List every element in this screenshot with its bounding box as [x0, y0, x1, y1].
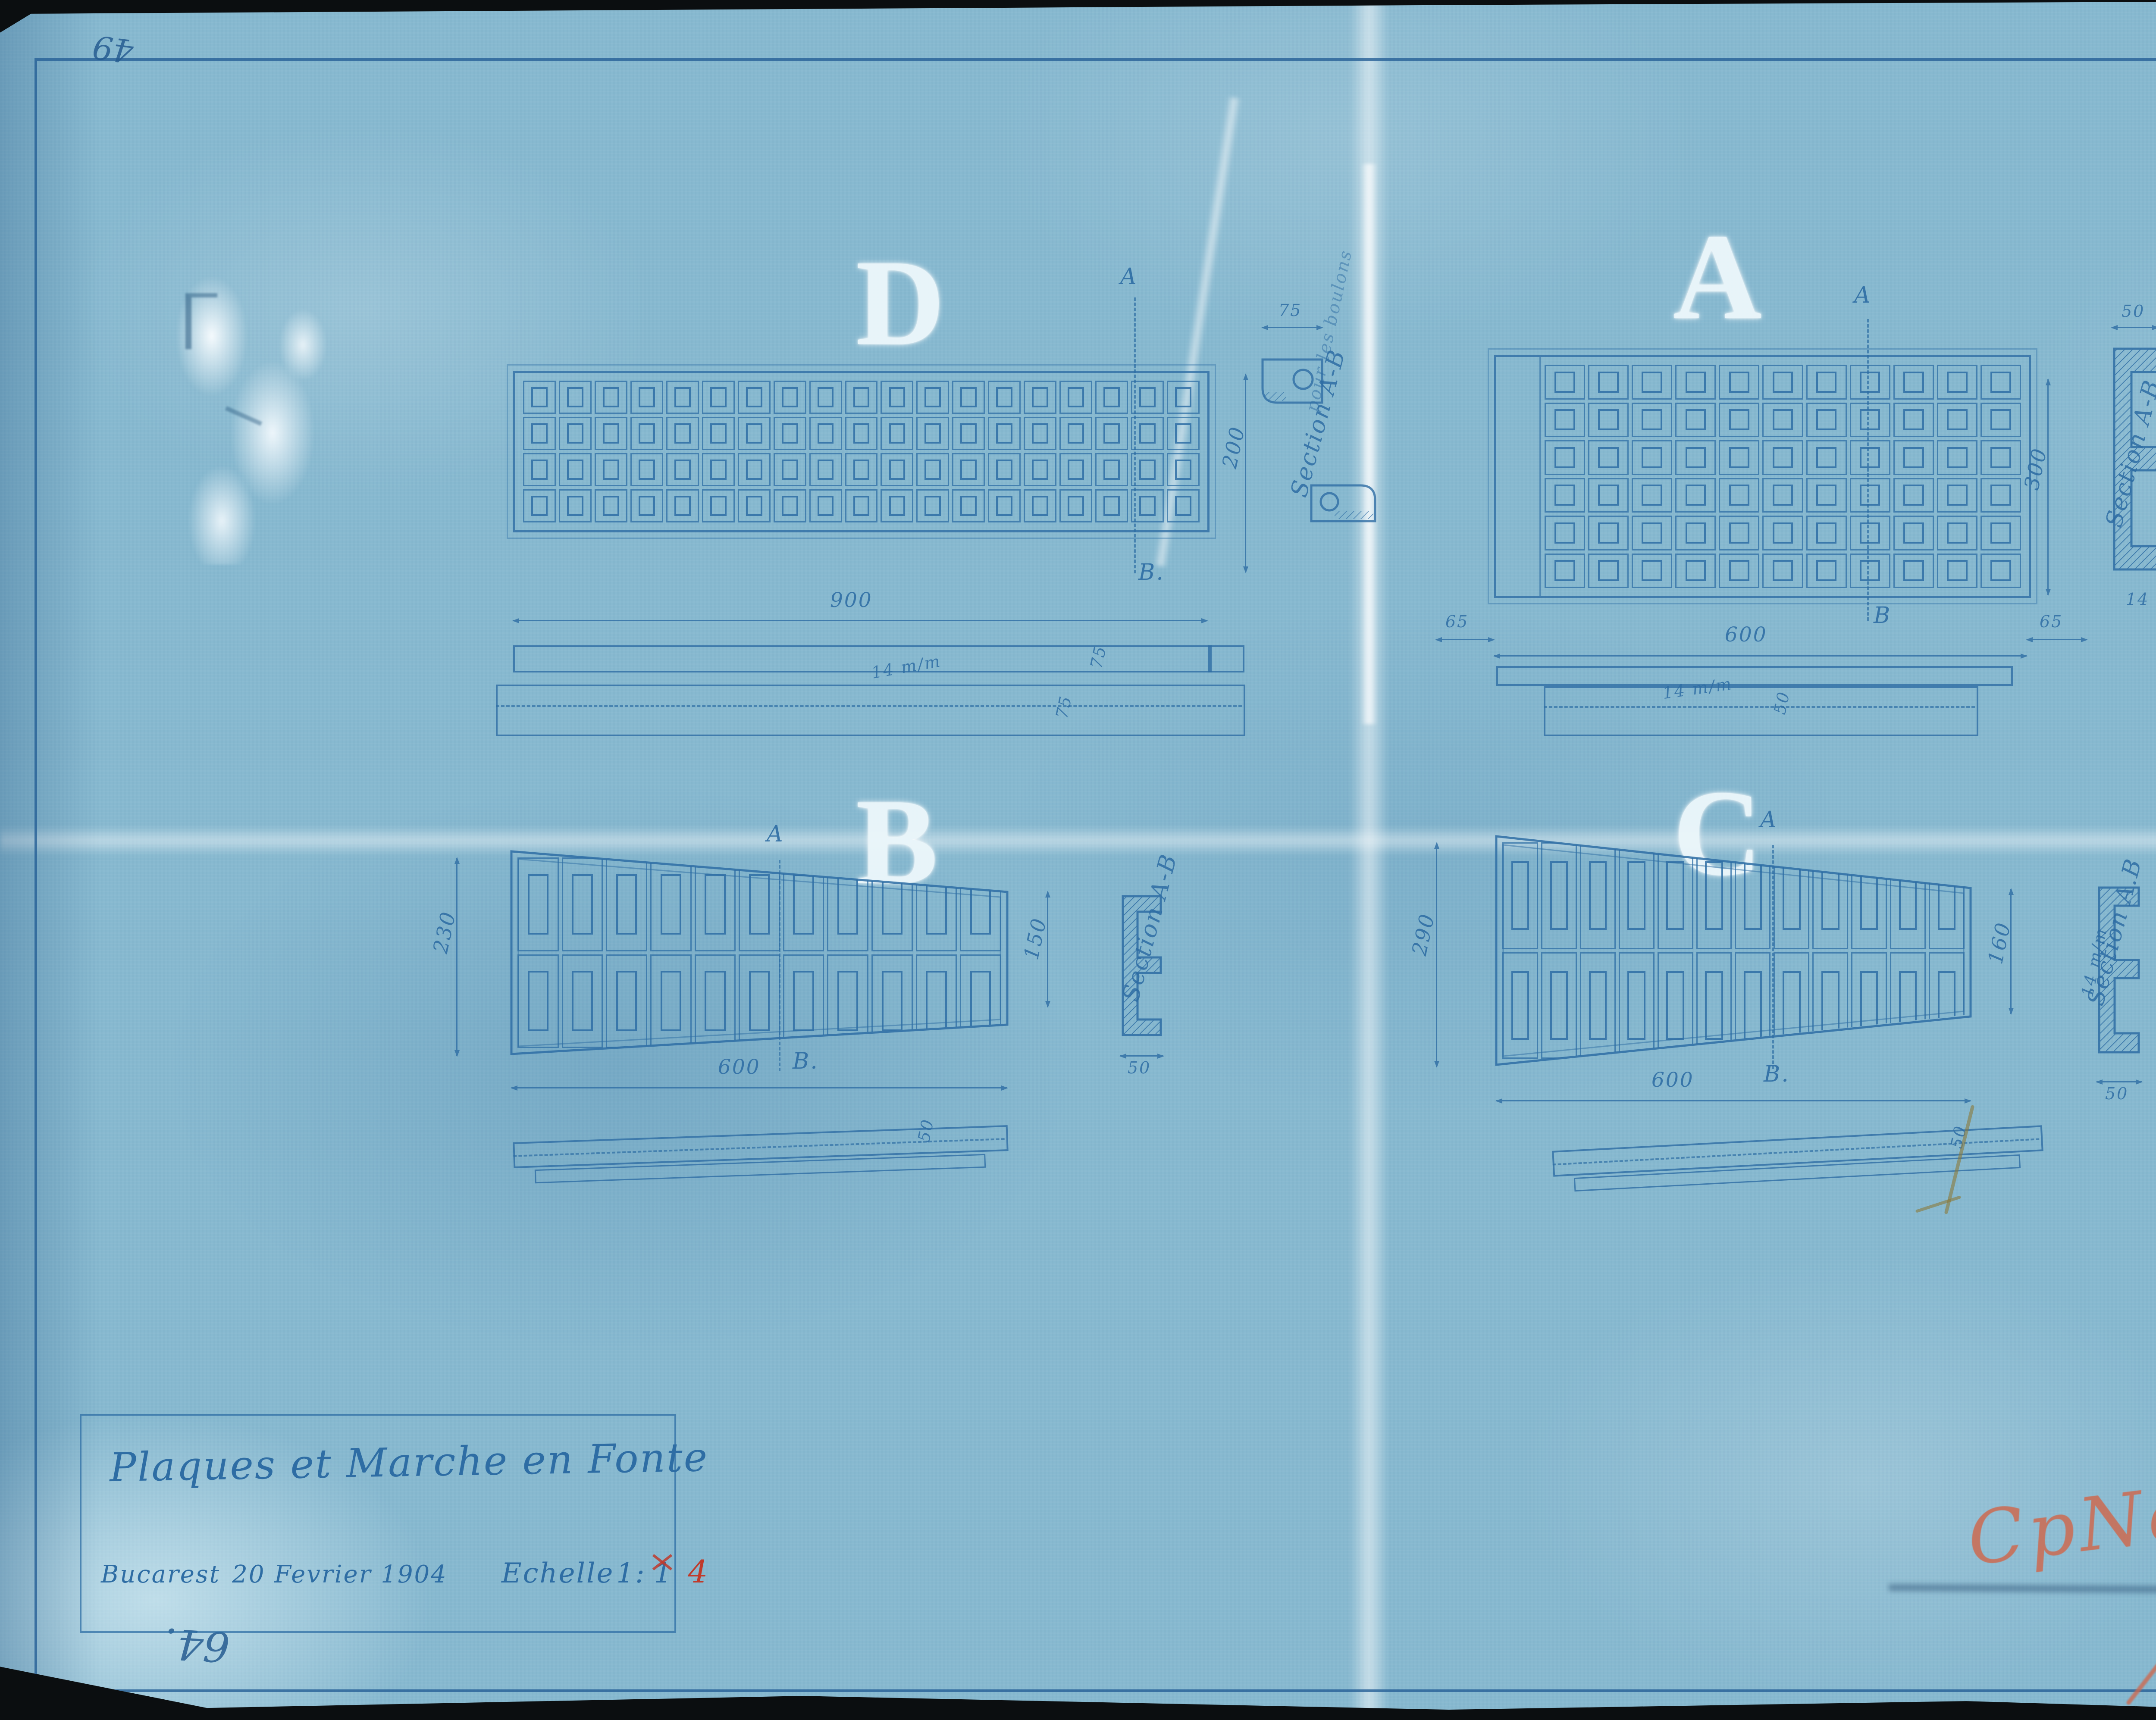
plate-C-length-dim-line: [1496, 1100, 1971, 1101]
detail-width-dim: 75: [1279, 301, 1302, 320]
coffer-cell: [1095, 453, 1128, 486]
coffer-cell: [952, 417, 985, 450]
plate-A-side-view-bottom: [1544, 686, 1978, 736]
coffer-cell: [845, 489, 878, 522]
coffer-cell: [559, 489, 592, 522]
plate-letter-A: A: [1673, 216, 1762, 338]
plate-B-left-height-dim-line: [456, 858, 458, 1056]
title-place: Bucarest: [101, 1561, 220, 1589]
coffer-cell: [916, 453, 949, 486]
coffer-cell: [1545, 440, 1585, 475]
coffer-cell: [630, 489, 663, 522]
coffer-cell: [1024, 489, 1056, 522]
coffer-cell: [1981, 478, 2021, 513]
coffer-cell: [1762, 365, 1803, 400]
coffer-cell: [1806, 516, 1847, 550]
coffer-cell: [1588, 516, 1629, 550]
coffer-cell: [1937, 440, 1977, 475]
coffer-cell: [559, 417, 592, 450]
plate-A-left-margin-dim-line: [1436, 639, 1494, 640]
coffer-cell: [845, 417, 878, 450]
coffer-cell: [1806, 403, 1847, 438]
coffer-cell: [666, 489, 699, 522]
coffer-cell: [916, 489, 949, 522]
plate-A-right-margin-dim: 65: [2040, 612, 2063, 631]
coffer-cell: [630, 453, 663, 486]
plate-C-plan: [1496, 836, 1971, 1065]
coffer-cell: [1095, 489, 1128, 522]
coffer-cell: [809, 453, 842, 486]
plate-B-marker-A: A: [767, 821, 784, 847]
plate-A-marker-A: A: [1854, 282, 1872, 308]
coffer-cell: [559, 381, 592, 414]
coffer-cell: [666, 381, 699, 414]
coffer-cell: [809, 417, 842, 450]
coffer-cell: [1719, 516, 1759, 550]
coffer-cell: [1937, 365, 1977, 400]
coffer-cell: [1762, 403, 1803, 438]
coffer-cell: [1131, 417, 1164, 450]
coffer-cell: [881, 381, 913, 414]
coffer-cell: [702, 417, 735, 450]
coffer-cell: [1850, 403, 1890, 438]
plate-C-outline: [1494, 834, 1973, 1067]
coffer-cell: [1981, 365, 2021, 400]
coffer-cell: [952, 453, 985, 486]
plate-C-marker-A: A: [1760, 807, 1778, 833]
coffer-cell: [1806, 365, 1847, 400]
coffer-cell: [1850, 478, 1890, 513]
plate-A-profile-width: 50: [2122, 302, 2145, 321]
plate-B-right-height-dim-line: [1047, 891, 1048, 1007]
coffer-cell: [881, 417, 913, 450]
coffer-cell: [1545, 365, 1585, 400]
coffer-cell: [630, 417, 663, 450]
coffer-cell: [1806, 440, 1847, 475]
coffer-cell: [1095, 417, 1128, 450]
coffer-cell: [988, 417, 1021, 450]
coffer-cell: [1167, 453, 1200, 486]
detail-width-dim-line: [1262, 327, 1322, 328]
sheet-number-top-left: 49: [91, 28, 135, 70]
coffer-cell: [774, 489, 806, 522]
coffer-cell: [1588, 440, 1629, 475]
coffer-cell: [738, 381, 771, 414]
plate-A-profile-section: [2111, 347, 2156, 571]
plate-B-marker-B: B.: [793, 1048, 819, 1074]
coffer-cell: [952, 381, 985, 414]
coffer-cell: [845, 381, 878, 414]
plate-D-coffer-grid: [523, 381, 1200, 522]
plate-B-profile-width: 50: [1128, 1058, 1151, 1077]
plate-D-marker-B: B.: [1138, 560, 1165, 585]
plate-A-side-view-top: [1496, 666, 2013, 686]
coffer-cell: [1059, 489, 1092, 522]
coffer-cell: [809, 489, 842, 522]
coffer-cell: [1632, 478, 1672, 513]
bolt-corner-detail-bottom: [1309, 483, 1378, 524]
coffer-cell: [1059, 417, 1092, 450]
plate-A-profile-width-dim-line: [2112, 327, 2156, 328]
coffer-cell: [1545, 516, 1585, 550]
plate-C-length-dim: 600: [1651, 1068, 1694, 1092]
coffer-cell: [1937, 403, 1977, 438]
plate-C-profile-section: [2096, 886, 2142, 1054]
coffer-cell: [1893, 403, 1934, 438]
coffer-cell: [1762, 478, 1803, 513]
coffer-cell: [774, 417, 806, 450]
coffer-cell: [1806, 478, 1847, 513]
coffer-cell: [1095, 381, 1128, 414]
coffer-cell: [702, 453, 735, 486]
coffer-cell: [1675, 403, 1716, 438]
coffer-cell: [523, 381, 556, 414]
coffer-cell: [1059, 453, 1092, 486]
coffer-cell: [1981, 440, 2021, 475]
plate-A-base-width-dim: 14 m/m: [2126, 590, 2156, 609]
plate-letter-D: D: [856, 241, 945, 364]
coffer-cell: [595, 453, 627, 486]
coffer-cell: [774, 381, 806, 414]
coffer-cell: [881, 489, 913, 522]
plate-C-profile-width: 50: [2105, 1084, 2128, 1103]
coffer-cell: [1981, 554, 2021, 588]
coffer-cell: [523, 489, 556, 522]
paper: 49 64. ROMÂNO-AMERICANA D A B. 900 200 S…: [0, 0, 2156, 1720]
plate-B-length-dim: 600: [718, 1055, 761, 1079]
coffer-cell: [1719, 403, 1759, 438]
plate-D-length-dim-line: [513, 620, 1207, 621]
plate-A-margin-strip: [1496, 357, 1541, 596]
plate-A-side-centerline: [1544, 706, 1975, 708]
coffer-cell: [1167, 381, 1200, 414]
plate-A-section-line: [1867, 319, 1869, 621]
coffer-cell: [1131, 453, 1164, 486]
coffer-cell: [1632, 440, 1672, 475]
plate-C-profile-width-dim-line: [2096, 1081, 2142, 1082]
coffer-cell: [1850, 440, 1890, 475]
coffer-cell: [1675, 440, 1716, 475]
plate-D-side-view-stub: [1208, 645, 1244, 672]
coffer-cell: [1675, 478, 1716, 513]
coffer-cell: [1588, 478, 1629, 513]
plate-D-height-dim-line: [1245, 374, 1246, 572]
coffer-cell: [916, 417, 949, 450]
plate-D-plan: [513, 371, 1210, 532]
plate-A-marker-B: B: [1874, 603, 1891, 629]
coffer-cell: [1893, 440, 1934, 475]
coffer-cell: [666, 453, 699, 486]
coffer-cell: [1545, 554, 1585, 588]
coffer-cell: [1588, 403, 1629, 438]
scale-old-value: 1: [654, 1557, 673, 1589]
scale-new-value: 4: [688, 1554, 709, 1590]
coffer-cell: [1632, 516, 1672, 550]
plate-D-section-line: [1134, 297, 1136, 573]
coffer-cell: [1762, 516, 1803, 550]
coffer-cell: [1937, 516, 1977, 550]
coffer-cell: [523, 417, 556, 450]
coffer-cell: [809, 381, 842, 414]
coffer-cell: [738, 453, 771, 486]
coffer-cell: [1850, 365, 1890, 400]
plate-A-coffer-grid: [1545, 365, 2021, 588]
coffer-cell: [1762, 554, 1803, 588]
coffer-cell: [1131, 381, 1164, 414]
coffer-cell: [1167, 489, 1200, 522]
coffer-cell: [1545, 478, 1585, 513]
coffer-cell: [1675, 554, 1716, 588]
scale-prefix: 1:: [616, 1557, 646, 1589]
plate-A-length-dim: 600: [1725, 623, 1767, 647]
coffer-cell: [1059, 381, 1092, 414]
coffer-cell: [1893, 554, 1934, 588]
coffer-cell: [1893, 365, 1934, 400]
coffer-cell: [595, 381, 627, 414]
coffer-cell: [1719, 365, 1759, 400]
plate-C-marker-B: B.: [1764, 1061, 1790, 1087]
coffer-cell: [559, 453, 592, 486]
coffer-cell: [1024, 453, 1056, 486]
coffer-cell: [1588, 554, 1629, 588]
title-date: 20 Fevrier 1904: [232, 1561, 448, 1589]
plate-D-side-centerline: [496, 705, 1242, 707]
coffer-cell: [1719, 478, 1759, 513]
plate-A-plan: [1494, 355, 2031, 598]
coffer-cell: [1937, 478, 1977, 513]
plate-A-right-margin-dim-line: [2027, 639, 2087, 640]
coffer-cell: [1024, 417, 1056, 450]
plate-B-length-dim-line: [511, 1087, 1007, 1088]
coffer-cell: [666, 417, 699, 450]
coffer-cell: [1850, 554, 1890, 588]
plate-D-side-view-bottom: [496, 685, 1245, 736]
plate-B-outline: [509, 849, 1010, 1057]
coffer-cell: [1167, 417, 1200, 450]
coffer-cell: [738, 489, 771, 522]
coffer-cell: [1024, 381, 1056, 414]
blueprint-sheet: 49 64. ROMÂNO-AMERICANA D A B. 900 200 S…: [0, 0, 2156, 1720]
coffer-cell: [1131, 489, 1164, 522]
plate-D-marker-A: A: [1120, 264, 1138, 290]
coffer-cell: [702, 489, 735, 522]
coffer-cell: [595, 489, 627, 522]
coffer-cell: [1545, 403, 1585, 438]
plate-B-profile-width-dim-line: [1120, 1055, 1163, 1057]
plate-A-left-margin-dim: 65: [1445, 612, 1469, 631]
coffer-cell: [881, 453, 913, 486]
coffer-cell: [1632, 365, 1672, 400]
plate-D-length-dim: 900: [830, 588, 873, 612]
plate-B-profile-section: [1120, 894, 1163, 1037]
coffer-cell: [952, 489, 985, 522]
plate-C-right-height-dim-line: [2010, 889, 2012, 1014]
plate-B-section-line: [779, 860, 780, 1071]
coffer-cell: [1675, 516, 1716, 550]
coffer-cell: [1981, 516, 2021, 550]
coffer-cell: [1719, 440, 1759, 475]
coffer-cell: [1675, 365, 1716, 400]
coffer-cell: [1588, 365, 1629, 400]
coffer-cell: [1893, 478, 1934, 513]
coffer-cell: [1719, 554, 1759, 588]
coffer-cell: [523, 453, 556, 486]
coffer-cell: [1806, 554, 1847, 588]
plate-C-left-height-dim-line: [1436, 843, 1437, 1067]
drawing-title: Plaques et Marche en Fonte: [109, 1434, 709, 1491]
coffer-cell: [630, 381, 663, 414]
plate-B-plan: [511, 851, 1007, 1054]
coffer-cell: [916, 381, 949, 414]
plate-A-length-dim-line: [1494, 655, 2027, 657]
plate-C-section-line: [1772, 845, 1774, 1069]
coffer-cell: [1632, 554, 1672, 588]
coffer-cell: [738, 417, 771, 450]
plate-A-height-dim-line: [2047, 379, 2049, 595]
coffer-cell: [988, 381, 1021, 414]
coffer-cell: [1762, 440, 1803, 475]
coffer-cell: [1850, 516, 1890, 550]
title-block: Plaques et Marche en Fonte Bucarest 20 F…: [80, 1414, 676, 1633]
coffer-cell: [1893, 516, 1934, 550]
coffer-cell: [1632, 403, 1672, 438]
coffer-cell: [845, 453, 878, 486]
scale-word: Echelle: [501, 1557, 614, 1589]
coffer-cell: [988, 453, 1021, 486]
coffer-cell: [988, 489, 1021, 522]
coffer-cell: [1981, 403, 2021, 438]
coffer-cell: [774, 453, 806, 486]
coffer-cell: [595, 417, 627, 450]
coffer-cell: [1937, 554, 1977, 588]
coffer-cell: [702, 381, 735, 414]
